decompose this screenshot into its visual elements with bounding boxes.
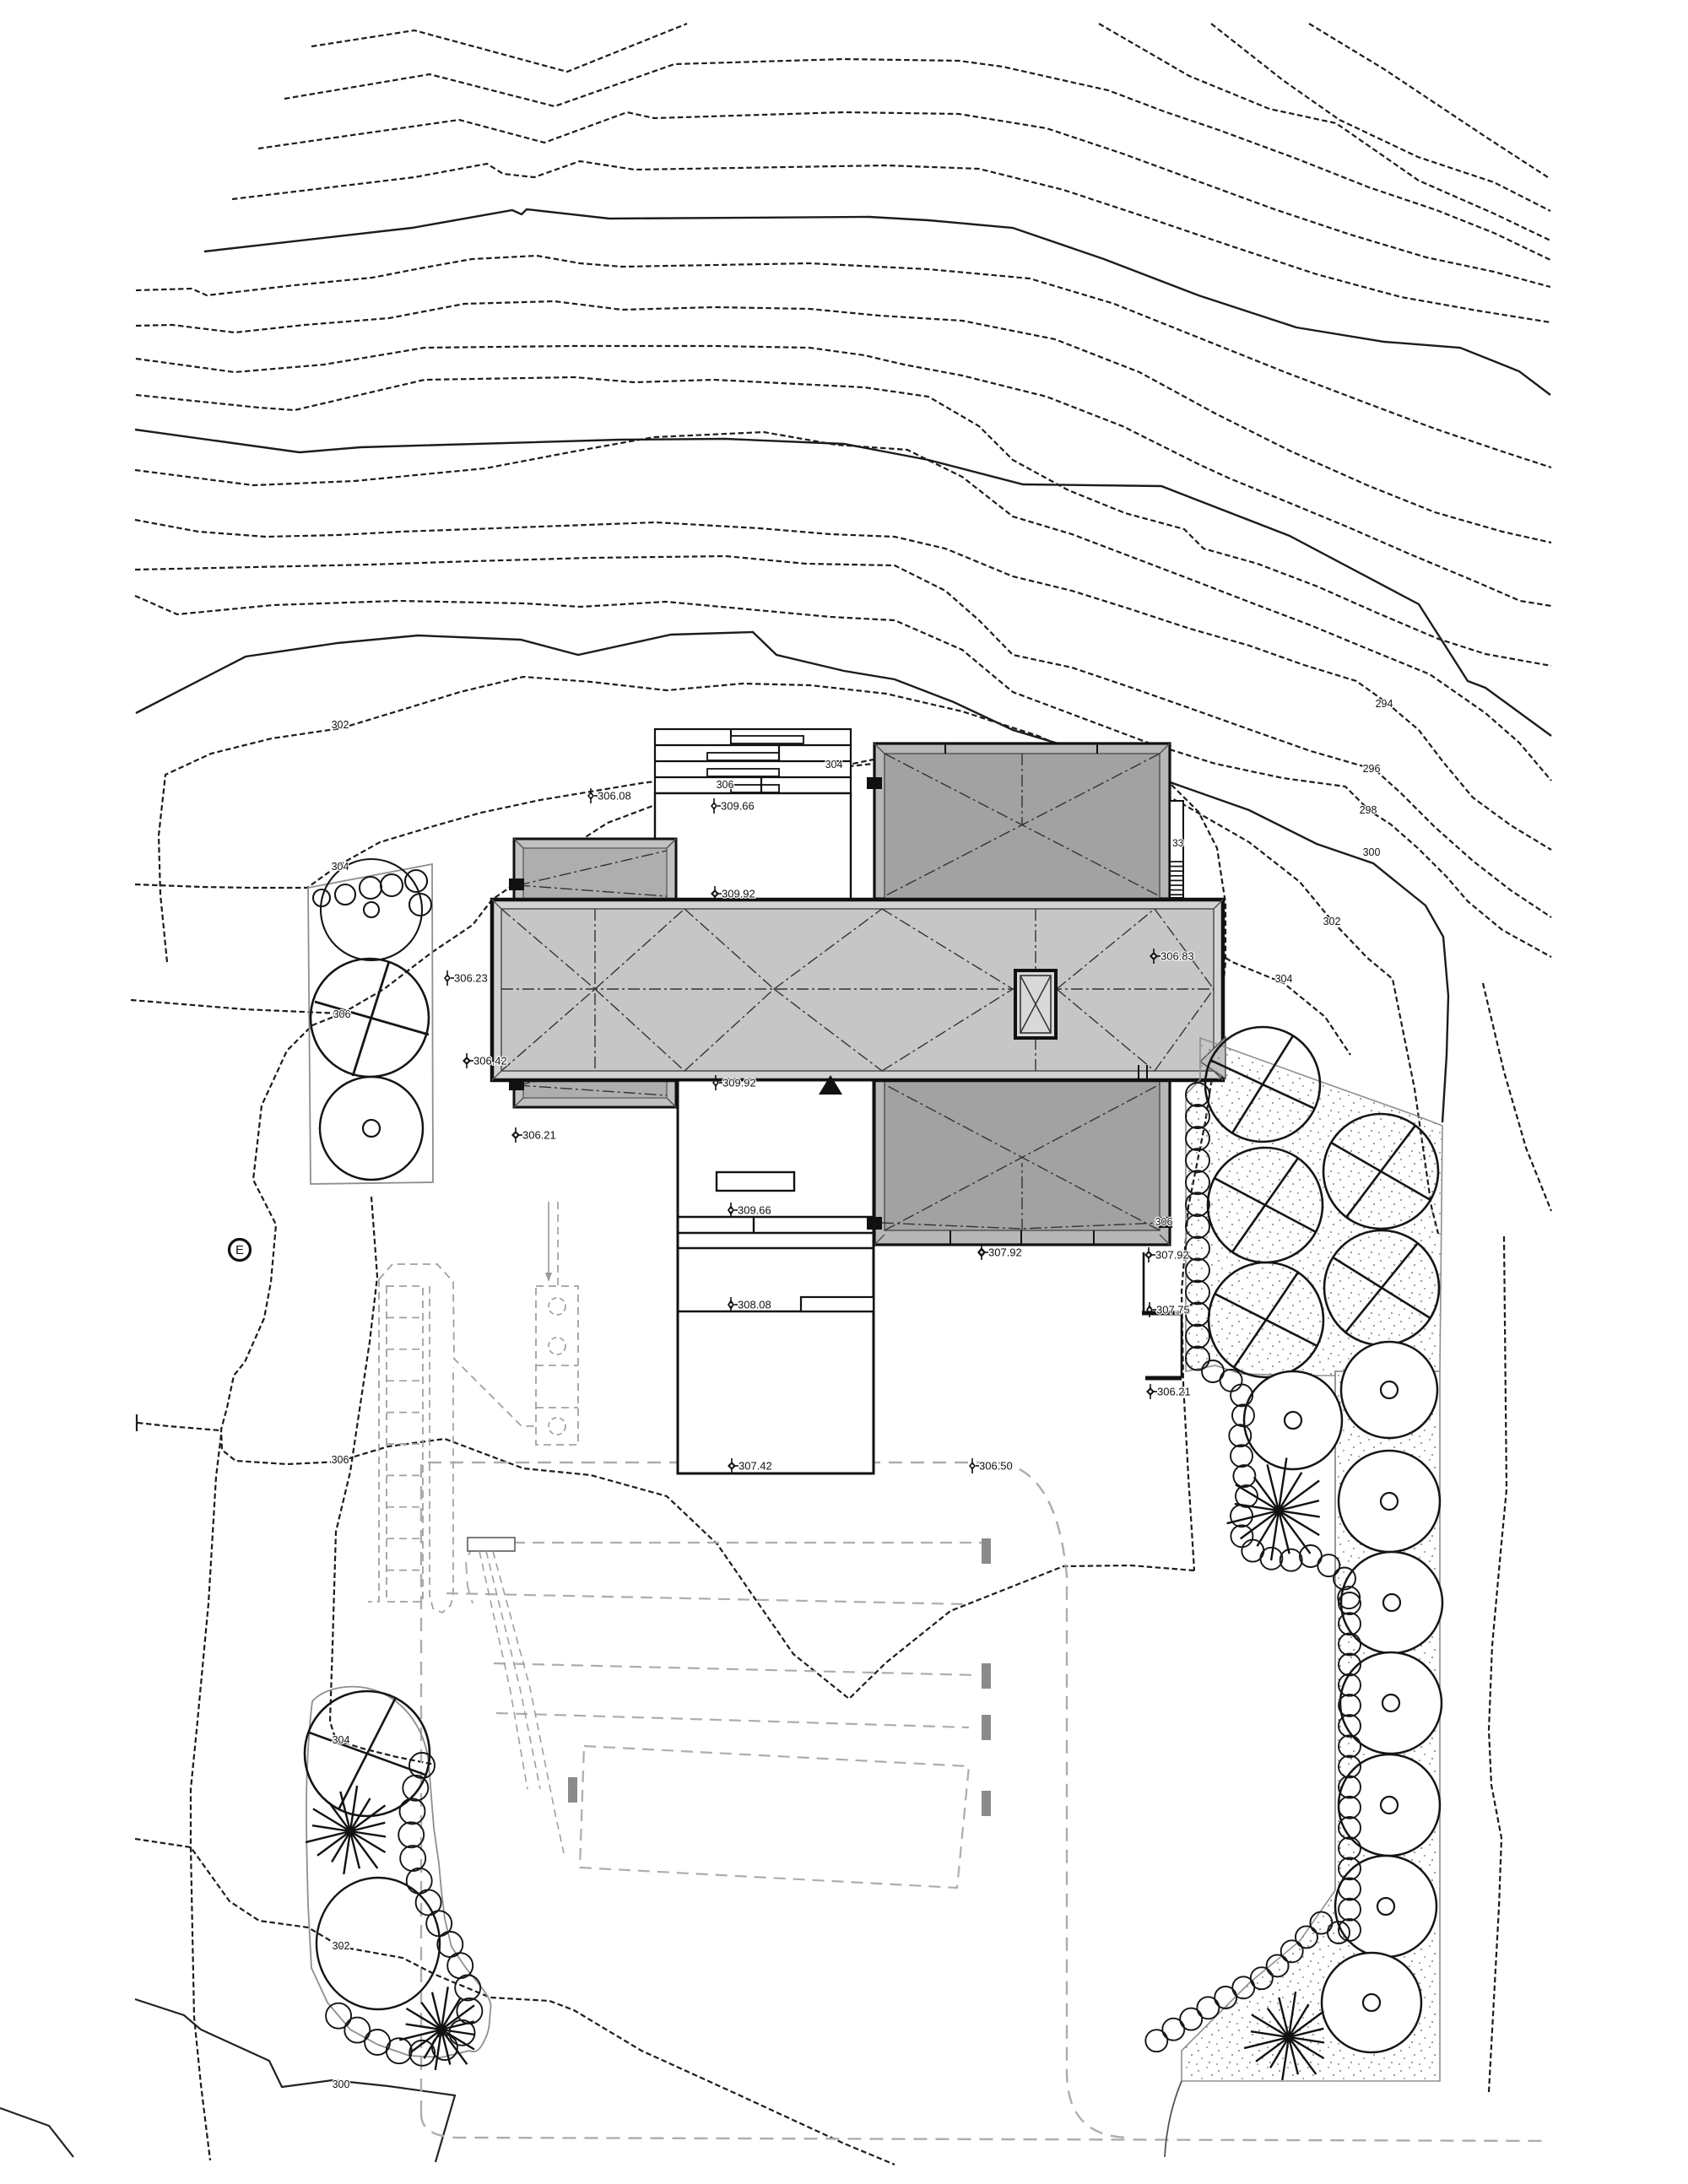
svg-text:304: 304 xyxy=(333,1734,350,1746)
svg-text:308.08: 308.08 xyxy=(738,1299,771,1311)
svg-text:294: 294 xyxy=(1376,698,1393,710)
svg-text:304: 304 xyxy=(1275,973,1293,985)
svg-text:33: 33 xyxy=(1172,837,1184,849)
svg-text:306.21: 306.21 xyxy=(522,1129,556,1142)
svg-text:306.83: 306.83 xyxy=(1160,950,1194,963)
svg-text:306: 306 xyxy=(333,1008,351,1020)
svg-text:309.92: 309.92 xyxy=(722,1077,756,1089)
svg-text:306.08: 306.08 xyxy=(598,790,631,803)
svg-text:306.42: 306.42 xyxy=(473,1055,507,1068)
svg-text:309.92: 309.92 xyxy=(722,888,755,900)
svg-text:307.42: 307.42 xyxy=(738,1460,772,1473)
svg-text:306: 306 xyxy=(332,1454,349,1466)
svg-text:306.21: 306.21 xyxy=(1157,1386,1191,1398)
svg-text:296: 296 xyxy=(1363,763,1381,775)
svg-text:309.66: 309.66 xyxy=(738,1204,771,1217)
svg-text:306.50: 306.50 xyxy=(979,1460,1013,1473)
svg-text:307.75: 307.75 xyxy=(1156,1304,1190,1316)
svg-text:306.23: 306.23 xyxy=(454,972,488,985)
svg-text:306: 306 xyxy=(1155,1216,1173,1228)
svg-text:304: 304 xyxy=(825,759,843,770)
svg-text:307.92: 307.92 xyxy=(1155,1249,1189,1262)
svg-text:302: 302 xyxy=(333,1940,350,1952)
svg-text:306: 306 xyxy=(717,779,734,791)
svg-text:307.92: 307.92 xyxy=(988,1246,1022,1259)
svg-text:302: 302 xyxy=(1323,916,1341,927)
svg-text:300: 300 xyxy=(333,2079,350,2090)
svg-text:309.66: 309.66 xyxy=(721,800,755,813)
svg-text:302: 302 xyxy=(332,719,349,731)
svg-text:298: 298 xyxy=(1360,804,1377,816)
svg-text:E: E xyxy=(235,1243,244,1257)
svg-text:300: 300 xyxy=(1363,846,1381,858)
svg-text:304: 304 xyxy=(332,861,349,873)
